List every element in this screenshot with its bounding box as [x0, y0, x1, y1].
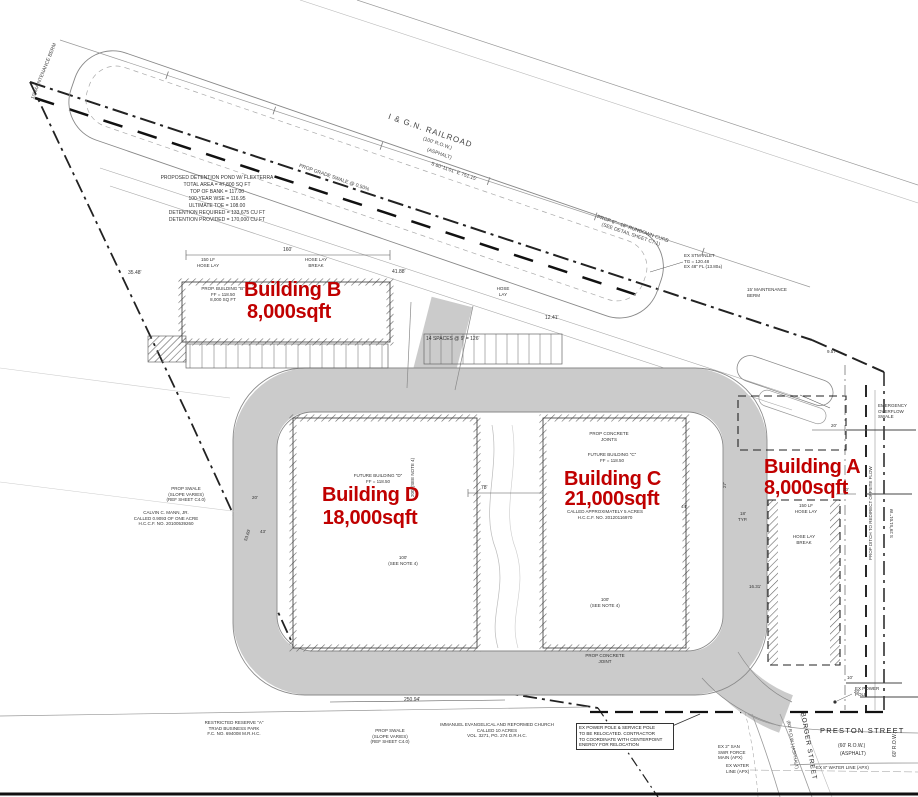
preston-row-label: (60' R.O.W.) — [838, 743, 865, 749]
reserve-line: F.C. NO. 694008 M.R.H.C. — [182, 731, 286, 737]
building-a-hatch-west — [768, 500, 778, 665]
dim-43: 43' — [260, 529, 266, 535]
dim-20a: 20' — [252, 495, 258, 501]
dim-16: 16.31' — [749, 584, 761, 590]
dim-9: 9.57' — [827, 349, 837, 355]
building-c-area: 21,000sqft — [564, 489, 660, 509]
parking-strip-b — [186, 344, 388, 368]
see-note-200-label: 200' (SEE NOTE 4) — [410, 458, 416, 497]
building-b-area: 8,000sqft — [244, 301, 334, 323]
east-bearing-label: S 29°51'01" W — [889, 509, 895, 538]
swale-line: (REF SHEET C4.0) — [150, 497, 222, 503]
dim-10b: 10' — [847, 675, 853, 681]
emergency-swale-line: EMERGENCY — [878, 403, 907, 409]
pond-note-line: DETENTION REQUIRED = 133,675 CU FT — [146, 210, 288, 217]
stm-inlet-line: EX 48" FL (13.80±) — [684, 264, 722, 270]
power-pole-line: EX POWER — [855, 686, 879, 692]
concrete-joints-line: JOINTS — [576, 437, 642, 443]
northeast-jog — [812, 340, 884, 372]
dim-41: 41.88' — [392, 269, 405, 275]
dim-44: 44' — [681, 504, 687, 510]
power-pole-leader — [837, 694, 852, 701]
hose-lay-break-b: HOSE LAY BREAK — [300, 257, 332, 268]
church-line: VOL. 3271, PG. 274 D.R.H.C. — [430, 733, 564, 739]
dim-typ: TYP. — [738, 517, 747, 523]
san-swr-line: MAIN (APX) — [718, 755, 746, 761]
power-note-line: ENERGY FOR RELOCATION — [579, 742, 671, 748]
southwest-line — [598, 708, 658, 797]
building-a-hatch-east — [830, 500, 840, 665]
preston-surface-label: (ASPHALT) — [840, 751, 866, 757]
building-c-note: FUTURE BUILDING "C" FF = 118.50 — [572, 452, 652, 463]
preston-street-label: PRESTON STREET — [820, 728, 905, 734]
dim-78: 78' — [481, 485, 488, 491]
building-b-name: Building B — [244, 279, 334, 301]
dim-35: 35.48' — [128, 270, 141, 276]
pond-note-line: DETENTION PROVIDED = 170,000 CU FT — [146, 217, 288, 224]
contour-2 — [510, 425, 520, 648]
dim-250: 250.94' — [404, 697, 420, 703]
see-note-d-label: 100' (SEE NOTE 4) — [378, 555, 428, 566]
pond-note-line: PROPOSED DETENTION POND W/ FLEXTERRA — [146, 175, 288, 182]
parking-stalls-b — [190, 344, 382, 368]
hose-lay-label: HOSE LAY — [492, 286, 514, 297]
building-d-area: 18,000sqft — [322, 507, 418, 530]
dim-27: 27' — [722, 482, 728, 488]
san-swr-label: EX 2" SAN SWR FORCE MAIN (APX) — [718, 744, 746, 761]
building-a-red-label: Building A 8,000sqft — [764, 457, 856, 499]
hose-lay-150-a: 150 LF HOSE LAY — [791, 503, 821, 514]
railroad-line-2 — [300, 0, 918, 203]
pond-note-line: ULTIMATE TOE = 108.00 — [146, 203, 288, 210]
site-plan-drawing — [0, 0, 918, 797]
contour-1 — [490, 425, 500, 648]
building-d-red-label: Building D 18,000sqft — [322, 484, 418, 530]
building-c-red-label: Building C 21,000sqft — [564, 469, 660, 509]
ex8-water-label: EX 8" WATER LINE (APX) — [816, 765, 869, 771]
church-line: IMMANUEL EVANGELICAL AND REFORMED CHURCH — [430, 722, 564, 728]
building-d-footprint — [293, 418, 477, 648]
building-a-footprint — [768, 500, 840, 665]
berm-right-line: BERM — [747, 293, 787, 299]
berm-right-line: 15' MAINTENANCE — [747, 287, 787, 293]
hose-break-line: BREAK — [300, 263, 332, 269]
railroad-track — [35, 98, 640, 296]
hose-150-line: HOSE LAY — [791, 509, 821, 515]
restricted-reserve-note: RESTRICTED RESERVE "A" TRIAD BUSINESS PA… — [182, 720, 286, 737]
emergency-swale-note: EMERGENCY OVERFLOW SWALE — [878, 403, 907, 420]
mann-parcel-note: CALVIN C. MANN, JR. CALLED 0.9093 OF ONE… — [112, 510, 220, 527]
see-note-line: (SEE NOTE 4) — [580, 603, 630, 609]
power-pole-line: POLE — [855, 692, 879, 698]
emergency-swale-line: SWALE — [878, 414, 907, 420]
see-note-line: (SEE NOTE 4) — [378, 561, 428, 567]
dim-18: 18' — [740, 511, 746, 517]
see-note-c-label: 100' (SEE NOTE 4) — [580, 597, 630, 608]
hose-150-line: HOSE LAY — [193, 263, 223, 269]
mann-line: H.C.C.F. NO. 20100539260 — [112, 521, 220, 527]
building-c-parcel-line: H.C.C.F. NO. 20120116970 — [540, 515, 670, 521]
row-60-label: 60' R.O.W. — [892, 733, 898, 757]
power-pole-relocation-note: EX POWER POLE & SERVICE POLE TO BE RELOC… — [576, 723, 674, 750]
ex-water-line: EX WATER — [726, 763, 749, 769]
prop-swale-note-bottom: PROP SWALE (SLOPE VARIES) (REF SHEET C4.… — [356, 728, 424, 745]
dim-20b: 20' — [831, 423, 837, 429]
pond-note-line: 100-YEAR WSE = 116.95 — [146, 196, 288, 203]
building-c-note-line: FF = 118.50 — [572, 458, 652, 464]
prop-swale-note-left: PROP SWALE (SLOPE VARIES) (REF SHEET C4.… — [150, 486, 222, 503]
dim-12: 12.41' — [545, 315, 558, 321]
concrete-joint-line: JOINT — [572, 659, 638, 665]
ex-power-pole-label: EX POWER POLE — [855, 686, 879, 697]
maintenance-berm-right-note: 15' MAINTENANCE BERM — [747, 287, 787, 298]
hose-break-line: BREAK — [788, 540, 820, 546]
hose-lay-line: LAY — [492, 292, 514, 298]
building-c-name: Building C — [564, 469, 660, 489]
spillway-inner — [757, 388, 828, 426]
parking-count-label: 14 SPACES @ 9' = 126' — [426, 336, 479, 342]
building-c-parcel-note: CALLED APPROXIMATELY 5 ACRES H.C.C.F. NO… — [540, 509, 670, 520]
pond-note-line: TOTAL AREA = 47,800 SQ FT — [146, 182, 288, 189]
church-parcel-note: IMMANUEL EVANGELICAL AND REFORMED CHURCH… — [430, 722, 564, 739]
detention-pond-note: PROPOSED DETENTION POND W/ FLEXTERRA TOT… — [146, 175, 288, 224]
building-d-name: Building D — [322, 484, 418, 507]
ex-stm-inlet-note: EX STM INLET TG = 120.48 EX 48" FL (13.8… — [684, 253, 722, 270]
stm-inlet-leader — [650, 262, 683, 272]
ex-water-label: EX WATER LINE (APX) — [726, 763, 749, 774]
building-b-red-label: Building B 8,000sqft — [244, 279, 334, 323]
ex-water-line: LINE (APX) — [726, 769, 749, 775]
offsite-line-1 — [0, 368, 230, 398]
concrete-joints-label: PROP CONCRETE JOINTS — [576, 431, 642, 442]
building-a-name: Building A — [764, 457, 856, 478]
hatch-strip-west — [148, 336, 186, 362]
power-pole-symbol — [833, 700, 836, 703]
prop-ditch-label: PROP DITCH TO REDIRECT OFFSITE FLOW — [868, 466, 874, 560]
site-plan-sheet: I & G.N. RAILROAD (100' R.O.W.) (ASPHALT… — [0, 0, 918, 797]
swale-line: (REF SHEET C4.0) — [356, 739, 424, 745]
pond-note-line: TOP OF BANK = 117.00 — [146, 189, 288, 196]
dim-10a: 10' — [843, 487, 849, 493]
concrete-joint-label: PROP CONCRETE JOINT — [572, 653, 638, 664]
dim-160: 160' — [283, 247, 292, 253]
hose-lay-150-b: 150 LF HOSE LAY — [193, 257, 223, 268]
hose-lay-break-a: HOSE LAY BREAK — [788, 534, 820, 545]
offsite-line-3 — [0, 707, 588, 716]
